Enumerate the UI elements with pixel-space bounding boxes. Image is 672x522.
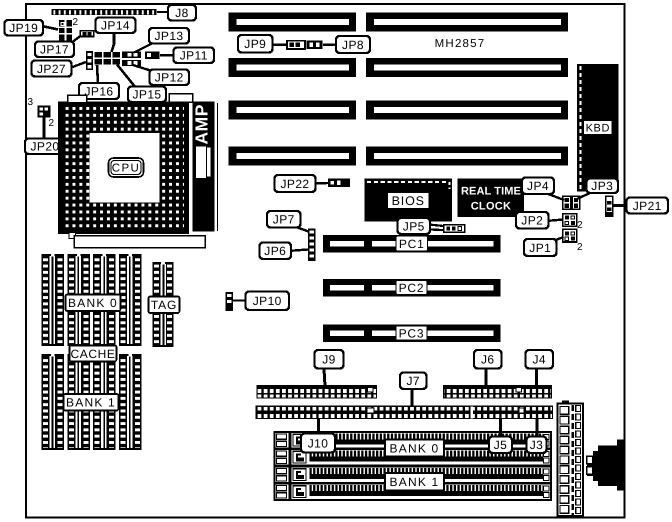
svg-text:CACHE: CACHE — [70, 347, 115, 361]
svg-text:JP3: JP3 — [591, 179, 613, 193]
svg-text:JP21: JP21 — [633, 199, 662, 213]
svg-text:2: 2 — [73, 17, 79, 28]
svg-text:BANK 0: BANK 0 — [68, 296, 118, 310]
svg-text:REAL TIME: REAL TIME — [461, 186, 521, 198]
svg-text:BANK 1: BANK 1 — [66, 396, 116, 410]
svg-text:BANK 1: BANK 1 — [390, 475, 440, 489]
svg-text:KBD: KBD — [586, 123, 610, 135]
svg-text:J8: J8 — [175, 6, 188, 20]
svg-text:J4: J4 — [533, 353, 546, 367]
svg-text:2: 2 — [577, 242, 583, 253]
svg-text:PC3: PC3 — [399, 326, 425, 340]
svg-text:JP1: JP1 — [529, 241, 551, 255]
svg-text:BANK 0: BANK 0 — [390, 441, 440, 455]
svg-text:3: 3 — [28, 97, 34, 108]
svg-text:JP22: JP22 — [281, 177, 310, 191]
svg-text:MH2857: MH2857 — [435, 38, 486, 50]
svg-text:JP16: JP16 — [85, 84, 114, 98]
svg-text:JP5: JP5 — [403, 219, 425, 233]
svg-text:BIOS: BIOS — [392, 194, 425, 208]
svg-text:JP6: JP6 — [264, 244, 286, 258]
svg-text:JP4: JP4 — [527, 179, 549, 193]
svg-text:JP8: JP8 — [342, 38, 364, 52]
svg-text:JP20: JP20 — [31, 140, 60, 154]
svg-text:JP9: JP9 — [244, 37, 266, 51]
svg-text:AMP: AMP — [192, 104, 212, 144]
svg-text:JP27: JP27 — [37, 62, 66, 76]
svg-text:2: 2 — [577, 220, 583, 231]
svg-text:J7: J7 — [407, 374, 420, 388]
svg-text:JP7: JP7 — [273, 213, 295, 227]
svg-text:TAG: TAG — [151, 298, 177, 312]
svg-text:JP10: JP10 — [253, 294, 282, 308]
svg-text:JP17: JP17 — [40, 43, 69, 57]
svg-text:PC2: PC2 — [399, 281, 425, 295]
svg-text:JP13: JP13 — [155, 29, 184, 43]
svg-text:CPU: CPU — [112, 163, 140, 175]
svg-text:PC1: PC1 — [399, 237, 425, 251]
svg-text:CLOCK: CLOCK — [471, 201, 512, 213]
svg-text:JP11: JP11 — [180, 49, 208, 63]
svg-text:J5: J5 — [494, 438, 507, 452]
svg-text:J10: J10 — [308, 436, 329, 450]
svg-text:J3: J3 — [530, 438, 543, 452]
svg-text:JP19: JP19 — [9, 21, 38, 35]
svg-text:JP14: JP14 — [101, 19, 130, 33]
svg-text:JP2: JP2 — [521, 214, 543, 228]
svg-text:JP12: JP12 — [155, 71, 184, 85]
svg-text:2: 2 — [49, 118, 55, 129]
svg-text:JP15: JP15 — [133, 88, 162, 102]
svg-text:J6: J6 — [481, 353, 494, 367]
svg-text:J9: J9 — [322, 353, 335, 367]
